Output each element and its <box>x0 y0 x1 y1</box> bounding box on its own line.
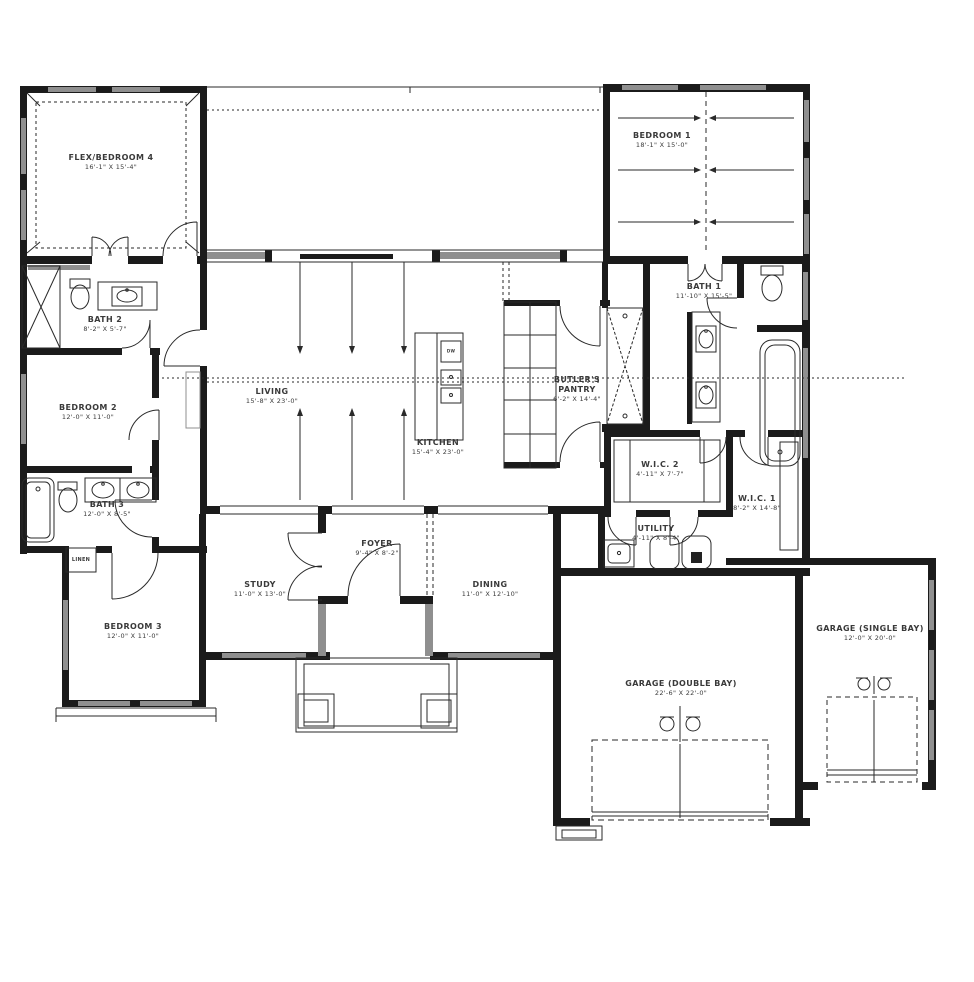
pantry-shelving-icon <box>607 308 643 424</box>
garage-steps <box>556 826 602 840</box>
floor-plan-drawing <box>0 0 974 982</box>
double-vanity-icon <box>692 312 720 422</box>
room-label-bedroom-3: BEDROOM 3 12'-0" X 11'-0" <box>104 622 162 640</box>
shower-icon <box>22 266 60 348</box>
room-label-living: LIVING 15'-8" X 23'-0" <box>246 387 298 405</box>
toilet-icon <box>761 266 783 301</box>
garage-double-bay <box>592 706 768 820</box>
room-label-bedroom-2: BEDROOM 2 12'-0" X 11'-0" <box>59 403 117 421</box>
doors <box>92 222 768 600</box>
toilet-icon <box>58 482 77 512</box>
room-label-garage-double-bay: GARAGE (DOUBLE BAY) 22'-6" X 22'-0" <box>625 679 737 697</box>
room-label-foyer: FOYER 9'-4" X 8'-2" <box>355 539 398 557</box>
front-porch <box>296 658 457 732</box>
room-label-butlers-pantry: BUTLER'S PANTRY 6'-2" X 14'-4" <box>548 375 606 403</box>
kitchen-island-icon <box>415 333 463 440</box>
room-label-flex-bedroom-4: FLEX/BEDROOM 4 16'-1" X 15'-4" <box>69 153 154 171</box>
art-niche <box>186 372 200 428</box>
room-label-wic-2: W.I.C. 2 4'-11" X 7'-7" <box>636 460 684 478</box>
room-label-study: STUDY 11'-0" X 13'-0" <box>234 580 286 598</box>
walls <box>20 84 936 826</box>
room-label-bedroom-1: BEDROOM 1 18'-1" X 15'-0" <box>633 131 691 149</box>
room-label-dining: DINING 11'-0" X 12'-10" <box>462 580 519 598</box>
room-label-garage-single-bay: GARAGE (SINGLE BAY) 12'-0" X 20'-0" <box>816 624 924 642</box>
room-label-bath-3: BATH 3 12'-0" X 8'-5" <box>83 500 131 518</box>
room-label-utility: UTILITY 4'-11" X 8'-4" <box>632 524 680 542</box>
room-label-kitchen: KITCHEN 15'-4" X 23'-0" <box>412 438 464 456</box>
floor-plan-page: FLEX/BEDROOM 4 16'-1" X 15'-4" BEDROOM 1… <box>0 0 974 982</box>
vanity-sink-icon <box>98 282 157 310</box>
arrow-heads <box>297 115 716 416</box>
room-label-bath-1: BATH 1 11'-10" X 15'-5" <box>676 282 733 300</box>
double-vanity-icon <box>85 478 156 502</box>
garage-single-bay <box>827 676 917 782</box>
dishwasher-label: DW <box>447 349 455 354</box>
room-label-wic-1: W.I.C. 1 8'-2" X 14'-8" <box>733 494 781 512</box>
toilet-icon <box>70 279 90 309</box>
room-label-bath-2: BATH 2 8'-2" X 5'-7" <box>83 315 126 333</box>
linen-closet-label: LINEN <box>72 557 90 563</box>
